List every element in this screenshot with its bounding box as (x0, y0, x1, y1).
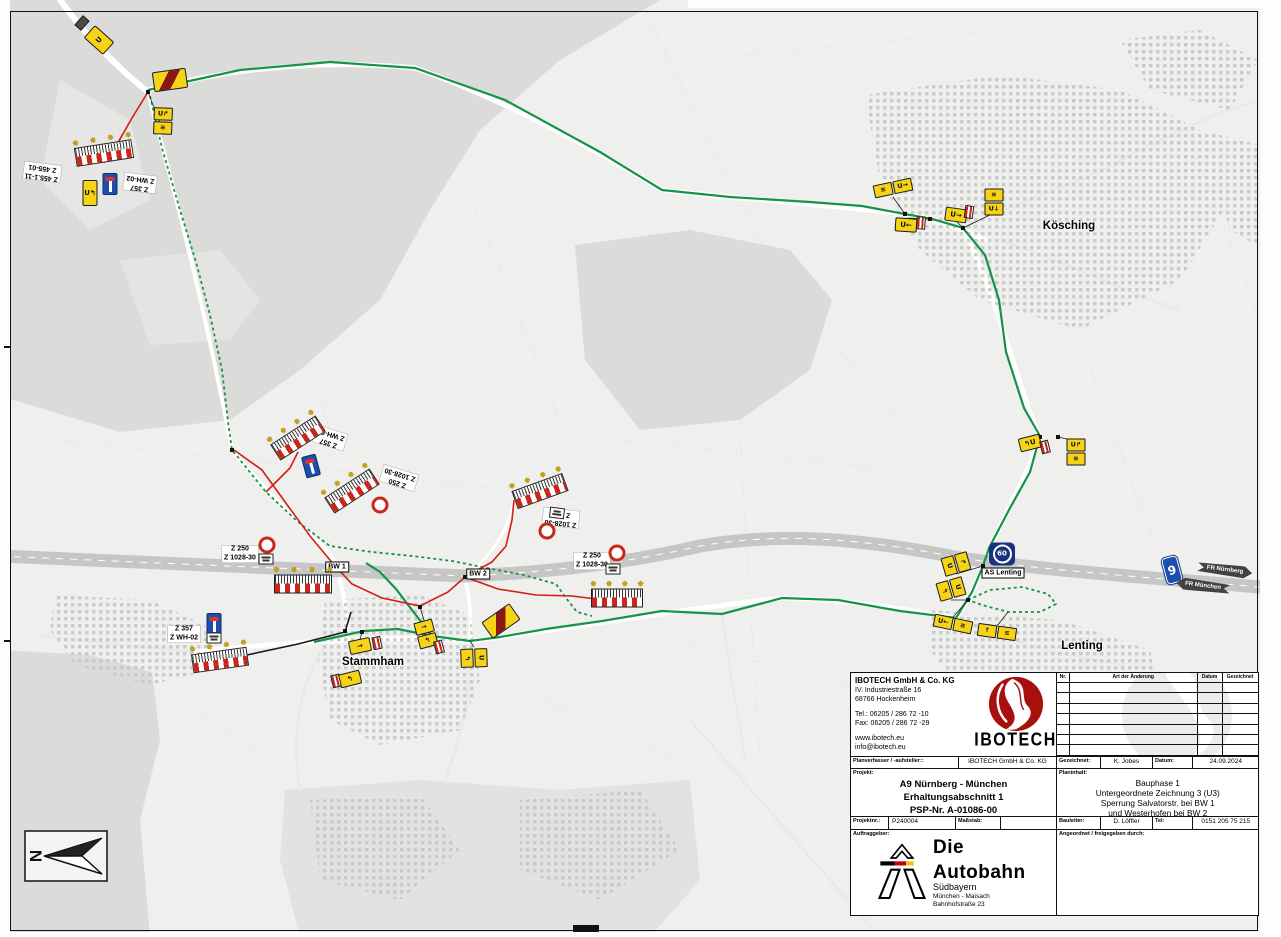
changelog-header: Nr. (1057, 673, 1070, 683)
changelog-empty-cell (1070, 683, 1198, 693)
planinhalt-line: Sperrung Salvatorstr. bei BW 1 (1057, 798, 1259, 808)
supplementary-plate (549, 507, 565, 520)
projekt-line: Erhaltungsabschnitt 1 (851, 791, 1056, 804)
anchor-dot (343, 629, 347, 633)
changelog-empty-cell (1223, 714, 1259, 724)
autobahn-logo-icon (877, 842, 927, 904)
client-street: Bahnhofstraße 23 (933, 901, 1026, 909)
gezeichnet-value: K. Jobes (1101, 757, 1153, 769)
changelog-header: Datum (1198, 673, 1223, 683)
ibotech-logo-icon (987, 675, 1045, 733)
frame-tick (4, 346, 10, 348)
company-email: info@ibotech.eu (855, 743, 971, 753)
ibotech-wordmark: IBOTECH (975, 732, 1057, 750)
structure-label: AS Lenting (982, 568, 1025, 579)
changelog-empty-cell (1223, 704, 1259, 714)
bauleiter-label: Bauleiter: (1057, 817, 1101, 830)
anchor-dot (928, 217, 932, 221)
changelog-empty-cell (1070, 704, 1198, 714)
town-label: Lenting (1061, 640, 1103, 652)
traffic-sign-plan: UU↱≡✸✸✸✸U↰✸✸✸✸✸✸✸✸✸✸✸✸✸✸✸✸✸✸✸✸✸✸✸✸→↰→↰U↰… (0, 0, 1281, 937)
auftraggeber-cell: Auftraggeber: Die Autobahn Südbayern Mün… (851, 830, 1057, 915)
anchor-dot (966, 598, 970, 602)
changelog-empty-cell (1198, 704, 1223, 714)
changelog-empty-cell (1198, 725, 1223, 735)
changelog-header: Art der Änderung (1070, 673, 1198, 683)
planverfasser-value: IBOTECH GmbH & Co. KG (959, 757, 1057, 769)
company-web: www.ibotech.eu (855, 734, 971, 744)
barrier-sign: ✸✸✸✸ (591, 589, 643, 608)
sheet-margin-bottom (0, 932, 1281, 937)
changelog-empty-cell (1057, 725, 1070, 735)
changelog-empty-cell (1198, 735, 1223, 745)
changelog-empty-cell (1223, 745, 1259, 755)
supplementary-plate (259, 554, 274, 565)
anchor-dot (418, 605, 422, 609)
client-name-line1: Die (933, 838, 1026, 857)
planinhalt-label: Planinhalt: (1057, 769, 1259, 778)
detour-sign-stack: U↱≡ (153, 107, 173, 135)
planinhalt-line: und Westerhofen bei BW 2 (1057, 808, 1259, 817)
changelog-empty-cell (1070, 735, 1198, 745)
barrier-mini-plate (964, 205, 975, 219)
changelog-empty-cell (1198, 693, 1223, 703)
detour-sign-stack: U↱≡ (1067, 439, 1086, 466)
projekt-label: Projekt: (851, 769, 1056, 778)
projekt-line: A9 Nürnberg - München (851, 778, 1056, 791)
sheet-margin-right (1260, 0, 1281, 937)
client-region: Südbayern (933, 882, 1026, 893)
anchor-dot (903, 212, 907, 216)
changelog-empty-cell (1070, 693, 1198, 703)
projektnr-label: Projektnr.: (851, 817, 889, 830)
changelog-empty-cell (1223, 693, 1259, 703)
angeordnet-cell: Angeordnet / freigegeben durch: (1057, 830, 1259, 915)
company-tel: Tel.: 06205 / 286 72 -10 (855, 710, 971, 720)
planverfasser-label: Planverfasser / -aufsteller:: (851, 757, 959, 769)
datum-value: 24.09.2024 (1193, 757, 1259, 769)
changelog-empty-cell (1057, 735, 1070, 745)
supplementary-plate (606, 564, 621, 575)
anchor-dot (1056, 435, 1060, 439)
anchor-dot (146, 90, 150, 94)
projekt-line: PSP-Nr. A-01086-00 (851, 804, 1056, 817)
fold-mark (573, 925, 599, 932)
projektnr-value: P240004 (889, 817, 956, 830)
changelog-empty-cell (1057, 745, 1070, 755)
planinhalt-line: Untergeordnete Zeichnung 3 (U3) (1057, 788, 1259, 798)
town-label: Stammham (342, 656, 404, 668)
road-closed-sign (259, 537, 276, 554)
north-letter: N (26, 850, 45, 862)
changelog-empty-cell (1223, 735, 1259, 745)
changelog-empty-cell (1198, 745, 1223, 755)
anchor-dot (230, 448, 234, 452)
massstab-value (1001, 817, 1057, 830)
frame-tick (4, 640, 10, 642)
client-name-line2: Autobahn (933, 863, 1026, 882)
road-closed-sign (539, 523, 556, 540)
client-city: München - Maisach (933, 893, 1026, 901)
detour-sign-stack: U↰ (460, 648, 488, 668)
detour-sign: U← (895, 217, 918, 233)
gezeichnet-label: Gezeichnet: (1057, 757, 1101, 769)
town-label: Kösching (1043, 220, 1095, 232)
changelog-empty-cell (1057, 683, 1070, 693)
changelog-empty-cell (1223, 683, 1259, 693)
north-arrow: N (24, 830, 108, 882)
changelog-empty-cell (1057, 704, 1070, 714)
road-closed-sign (609, 545, 626, 562)
planinhalt-line: Bauphase 1 (1057, 778, 1259, 788)
sign-ref-label: Z 250Z 1028-30 (222, 546, 258, 563)
sign-ref-label: Z 357Z WH-02 (168, 626, 200, 643)
changelog-empty-cell (1070, 714, 1198, 724)
massstab-label: Maßstab: (956, 817, 1001, 830)
company-fax: Fax: 06205 / 286 72 -29 (855, 719, 971, 729)
road-closed-sign (372, 497, 389, 514)
dead-end-sign (103, 173, 118, 195)
tel-value: 0151 205 75 215 (1193, 817, 1259, 830)
projekt-cell: Projekt: A9 Nürnberg - München Erhaltung… (851, 769, 1057, 817)
changelog-empty-cell (1057, 693, 1070, 703)
datum-label: Datum: (1153, 757, 1193, 769)
anchor-dot (961, 226, 965, 230)
company-street: IV. Industriestraße 16 (855, 686, 971, 696)
anchor-dot (360, 630, 364, 634)
sheet-margin-top (688, 0, 1281, 8)
barrier-sign: ✸✸✸✸ (274, 575, 332, 594)
ibotech-logo: IBOTECH (975, 673, 1057, 757)
junction-60-badge: 60 (989, 543, 1015, 566)
changelog-empty-cell (1198, 714, 1223, 724)
structure-label: BW 2 (466, 569, 490, 580)
title-block: IBOTECH GmbH & Co. KG IV. Industriestraß… (850, 672, 1259, 916)
changelog-empty-cell (1198, 683, 1223, 693)
company-city: 68766 Hockenheim (855, 695, 971, 705)
company-name: IBOTECH GmbH & Co. KG (855, 676, 971, 686)
detour-sign-stack: ≡U↓ (985, 189, 1004, 216)
changelog-header: Gezeichnet (1223, 673, 1259, 683)
changelog-empty-cell (1057, 714, 1070, 724)
company-address: IBOTECH GmbH & Co. KG IV. Industriestraß… (851, 673, 975, 757)
changelog-empty-cell (1070, 745, 1198, 755)
planinhalt-cell: Planinhalt: Bauphase 1 Untergeordnete Ze… (1057, 769, 1259, 817)
sheet-margin-left (0, 0, 10, 937)
tel-label: Tel: (1153, 817, 1193, 830)
changelog-table: Nr.Art der ÄnderungDatumGezeichnet (1057, 673, 1259, 757)
barrier-mini-plate (916, 216, 926, 230)
changelog-empty-cell (1070, 725, 1198, 735)
detour-sign: U↰ (83, 180, 98, 206)
changelog-empty-cell (1223, 725, 1259, 735)
bauleiter-value: D. Löffler (1101, 817, 1153, 830)
